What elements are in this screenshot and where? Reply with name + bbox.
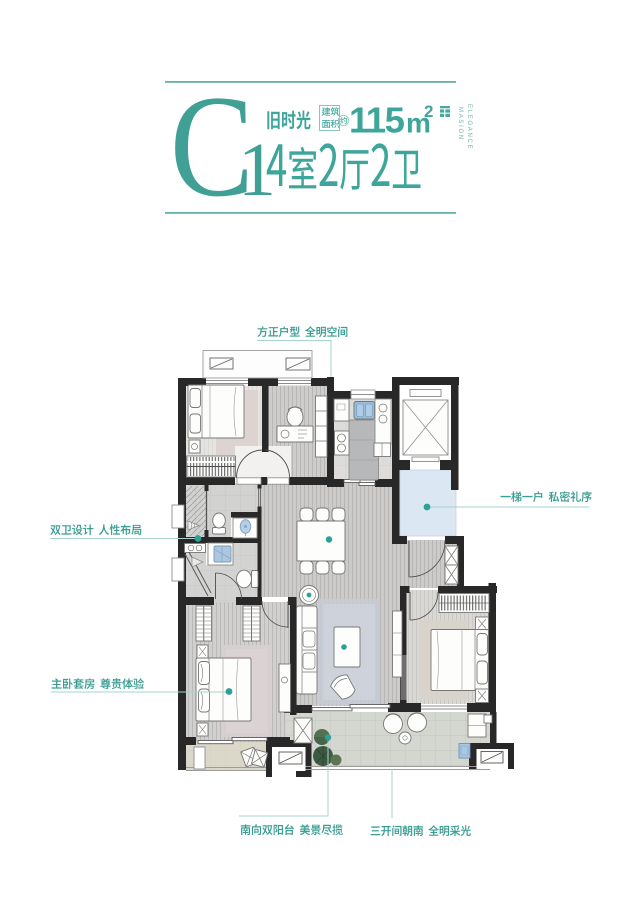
svg-text:MASION: MASION [457, 107, 463, 141]
svg-text:ELEGANCE: ELEGANCE [466, 104, 472, 150]
svg-text:115: 115 [349, 100, 405, 141]
svg-text:2: 2 [424, 102, 433, 121]
